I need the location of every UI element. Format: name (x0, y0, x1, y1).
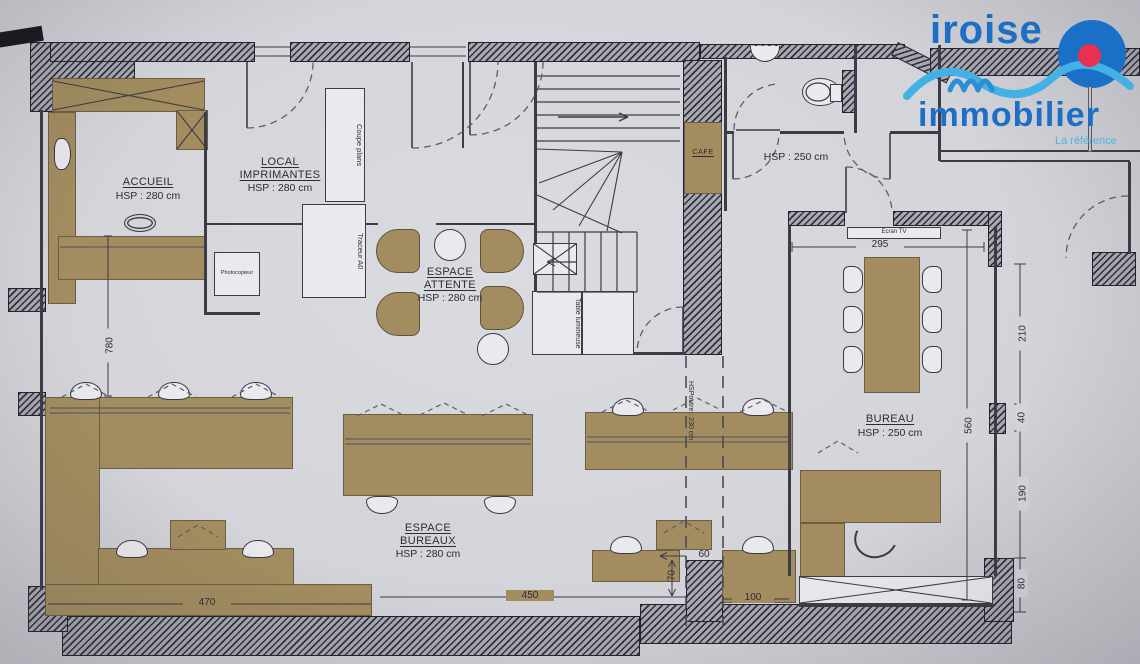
meeting-chair (843, 346, 863, 373)
room-height: HSP : 280 cm (232, 182, 328, 194)
wall-wc-south-b (780, 131, 844, 134)
light-table-box: Table lumineuse (532, 291, 582, 355)
agency-logo: iroise immobilier La référence (900, 0, 1140, 165)
photocopier-label: Photocopieur (215, 270, 259, 276)
room-height: HSP : 280 cm (380, 548, 476, 560)
accueil-desk-return (58, 236, 206, 280)
room-height: HSP : 280 cm (100, 190, 196, 202)
dim-bottom-100: 100 (732, 592, 774, 603)
wall-center-pillar (686, 560, 723, 622)
wall-bureau-top-a (788, 211, 845, 226)
desk-chair (610, 536, 642, 554)
stairs-up-arrow (558, 113, 628, 121)
dim-right-40: 40 (1017, 404, 1028, 432)
desk-chair (742, 536, 774, 554)
meeting-chair (843, 306, 863, 333)
tv-screen-box: Ecran TV (847, 227, 941, 239)
dim-recess-70: 70 (667, 562, 678, 590)
wall-accueil-right (204, 112, 207, 315)
plotter-label: Traceur A0 (356, 233, 365, 269)
wall-bureau-right (994, 226, 997, 576)
logo-name: iroise (930, 8, 1043, 53)
cafe-counter (684, 122, 722, 194)
dim-bottom-450: 450 (506, 590, 554, 601)
stairs-treads (537, 76, 680, 141)
meeting-chair (843, 266, 863, 293)
plotter-box: Traceur A0 (302, 204, 366, 298)
dim-recess-60: 60 (690, 549, 718, 560)
desk-chair (612, 398, 644, 416)
tv-screen-label: Ecran TV (848, 229, 940, 236)
light-table-box-2 (582, 291, 634, 355)
round-table (477, 333, 509, 365)
desk-chair (242, 540, 274, 558)
wall-bureau-left (788, 226, 791, 576)
meeting-chair (922, 306, 942, 333)
plan-cutter-label: Coupe plans (355, 124, 364, 166)
reception-stool (124, 214, 156, 232)
dim-bureau-depth: 560 (964, 409, 975, 443)
dim-bottom-470: 470 (183, 597, 231, 608)
eb-desk-riser-left (170, 520, 226, 550)
room-label-accueil: ACCUEIL HSP : 280 cm (100, 176, 196, 202)
dim-right-190: 190 (1018, 477, 1029, 511)
eb-desk-riser-right (656, 520, 712, 550)
bureau-low-cabinet (799, 576, 993, 604)
eb-desk-left-band (45, 397, 100, 599)
toilet-tank (830, 84, 842, 102)
room-label-sanitaires: HSP : 250 cm (756, 150, 836, 163)
wall-bureau-top-b (893, 211, 1002, 226)
room-label-espace-attente: ESPACE ATTENTE HSP : 280 cm (408, 266, 492, 304)
photocopier-box: Photocopieur (214, 252, 260, 296)
stairs-cupboard (533, 243, 577, 275)
room-height: HSP : 250 cm (846, 427, 934, 439)
wall-top-b (290, 42, 410, 62)
meeting-chair (922, 266, 942, 293)
meeting-chair (922, 346, 942, 373)
wall-bureau-bottom (799, 604, 994, 607)
dim-bureau-width: 295 (856, 239, 904, 250)
wall-entry-jamb (462, 62, 464, 148)
reception-chair (54, 138, 71, 170)
room-name: ACCUEIL (100, 176, 196, 189)
room-label-local-imprimantes: LOCAL IMPRIMANTES HSP : 280 cm (232, 156, 328, 194)
wall-far-right-vert (1128, 162, 1131, 254)
wall-top-a (50, 42, 255, 62)
bureau-desk-leg (800, 523, 845, 578)
desk-chair (366, 496, 398, 514)
round-table (434, 229, 466, 261)
desk-chair (158, 382, 190, 400)
wall-accueil-return (204, 312, 260, 315)
wall-local-south-b (436, 223, 536, 225)
desk-chair (742, 398, 774, 416)
wall-left-exterior (40, 110, 43, 590)
logo-tagline: La référence (1055, 135, 1117, 147)
dim-right-80: 80 (1017, 570, 1028, 598)
room-name: LOCAL IMPRIMANTES (232, 156, 328, 181)
meeting-table (864, 257, 920, 393)
room-name: ESPACE ATTENTE (408, 266, 492, 291)
plan-cutter-box: Coupe plans (325, 88, 365, 202)
dim-hall-length: 780 (105, 329, 116, 363)
wall-far-right-corner (1092, 252, 1136, 286)
logo-name2: immobilier (918, 96, 1100, 135)
light-table-label: Table lumineuse (574, 298, 581, 349)
room-name: BUREAU (846, 413, 934, 426)
wall-wc-divider (854, 45, 857, 133)
room-label-cafe: CAFE (684, 148, 722, 157)
room-height: HSP : 250 cm (756, 151, 836, 163)
logo-pin-dot (1078, 44, 1101, 67)
accueil-wall-cabinet (52, 78, 205, 112)
beam-annotation: HSPoutre : 230 cm (686, 356, 694, 466)
room-name: ESPACE BUREAUX (380, 522, 476, 547)
room-label-espace-bureaux: ESPACE BUREAUX HSP : 280 cm (380, 522, 476, 560)
desk-chair (484, 496, 516, 514)
bureau-desk-top (800, 470, 941, 523)
wall-right-pillar (989, 403, 1006, 434)
room-height: HSP : 280 cm (408, 292, 492, 304)
floor-plan-scan: Photocopieur Coupe plans Traceur A0 Tabl… (0, 0, 1140, 664)
room-label-bureau: BUREAU HSP : 250 cm (846, 413, 934, 439)
dim-right-210: 210 (1018, 317, 1029, 351)
desk-chair (240, 382, 272, 400)
wall-top-wc (700, 44, 905, 59)
desk-chair (70, 382, 102, 400)
wall-top-c (468, 42, 700, 62)
wc-sink (750, 46, 780, 62)
eb-desk-island (343, 414, 533, 496)
wall-center-column (683, 60, 722, 355)
wall-wc-left (724, 57, 727, 211)
stairs-winders (537, 149, 622, 233)
wall-bottom-left-band (62, 616, 640, 656)
desk-chair (116, 540, 148, 558)
